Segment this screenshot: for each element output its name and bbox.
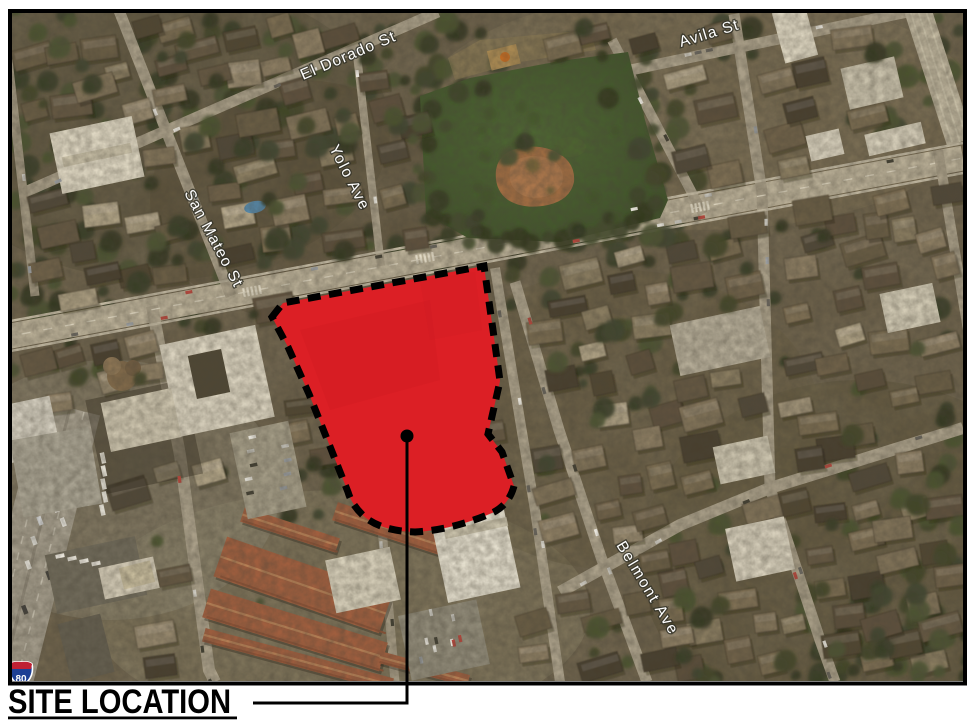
svg-text:SITE LOCATION: SITE LOCATION: [8, 683, 231, 721]
